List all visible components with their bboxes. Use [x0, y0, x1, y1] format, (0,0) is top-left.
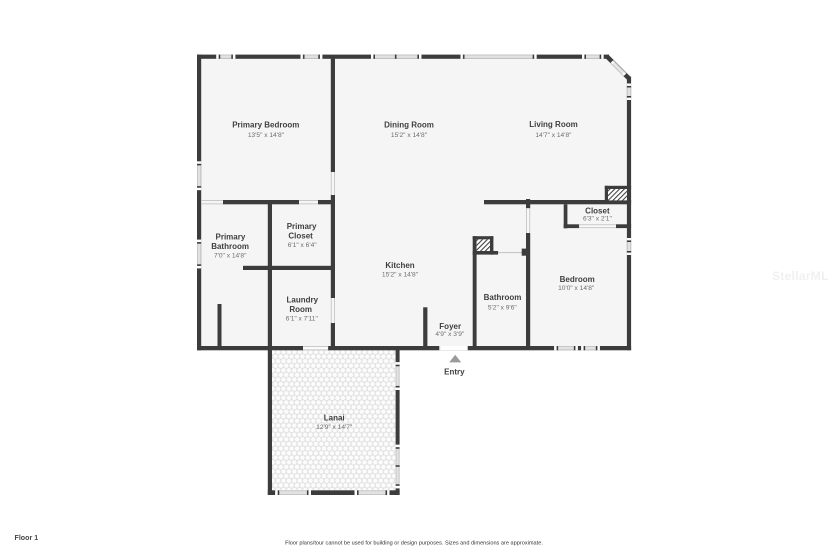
- svg-text:Dining Room: Dining Room: [384, 120, 434, 129]
- svg-text:Room: Room: [289, 305, 312, 314]
- svg-text:Primary: Primary: [287, 222, 317, 231]
- svg-text:Floor plans/tour cannot be use: Floor plans/tour cannot be used for buil…: [285, 541, 543, 547]
- svg-text:12'9" x 14'7": 12'9" x 14'7": [316, 424, 353, 431]
- svg-text:4'9" x 3'9": 4'9" x 3'9": [435, 331, 464, 338]
- svg-text:Floor 1: Floor 1: [15, 534, 39, 542]
- svg-text:Laundry: Laundry: [287, 296, 319, 305]
- svg-text:10'0" x 14'8": 10'0" x 14'8": [558, 285, 595, 292]
- svg-text:Closet: Closet: [585, 207, 610, 216]
- svg-text:Bathroom: Bathroom: [484, 293, 522, 302]
- svg-text:5'2" x 9'6": 5'2" x 9'6": [488, 304, 517, 311]
- svg-text:6'1" x 6'4": 6'1" x 6'4": [288, 242, 317, 249]
- svg-text:15'2" x 14'8": 15'2" x 14'8": [391, 132, 428, 139]
- svg-text:Bathroom: Bathroom: [211, 242, 249, 251]
- svg-text:13'5" x 14'8": 13'5" x 14'8": [248, 132, 285, 139]
- svg-text:6'3" x 2'1": 6'3" x 2'1": [583, 216, 612, 223]
- svg-text:Bedroom: Bedroom: [560, 275, 595, 284]
- svg-text:Lanai: Lanai: [324, 414, 345, 423]
- svg-text:Primary: Primary: [216, 233, 246, 242]
- svg-text:StellarMLS: StellarMLS: [772, 269, 828, 283]
- svg-text:7'0" x 14'8": 7'0" x 14'8": [214, 252, 247, 259]
- svg-text:14'7" x 14'8": 14'7" x 14'8": [535, 132, 572, 139]
- svg-text:6'1" x 7'11": 6'1" x 7'11": [286, 315, 319, 322]
- svg-text:Foyer: Foyer: [439, 322, 461, 331]
- svg-text:Kitchen: Kitchen: [385, 261, 414, 270]
- svg-text:Entry: Entry: [444, 367, 465, 376]
- svg-text:15'2" x 14'8": 15'2" x 14'8": [382, 272, 419, 279]
- svg-text:Primary Bedroom: Primary Bedroom: [232, 120, 299, 129]
- svg-text:Living Room: Living Room: [529, 120, 577, 129]
- svg-text:Closet: Closet: [288, 232, 313, 241]
